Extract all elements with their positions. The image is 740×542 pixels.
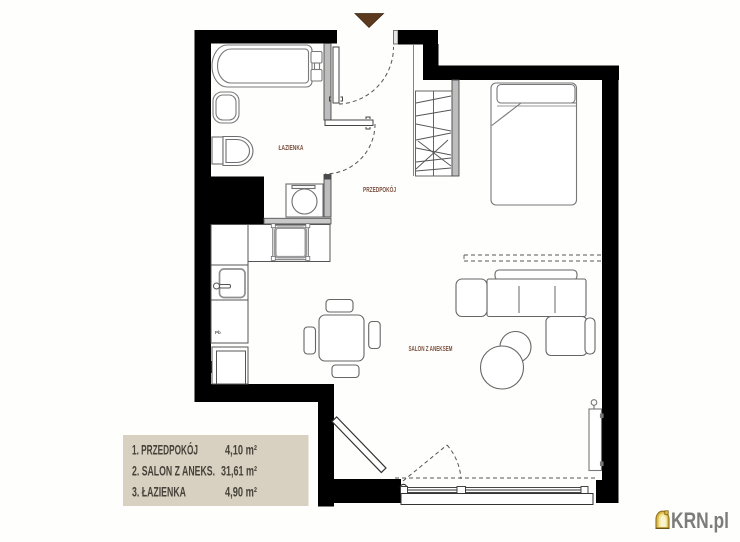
svg-text:Pb: Pb (215, 330, 221, 335)
svg-text:PRZEDPOKÓJ: PRZEDPOKÓJ (363, 185, 396, 194)
svg-text:4,90 m²: 4,90 m² (225, 484, 257, 500)
svg-text:2. SALON Z ANEKS.: 2. SALON Z ANEKS. (132, 463, 215, 479)
svg-text:1. PRZEDPOKÓJ: 1. PRZEDPOKÓJ (132, 441, 198, 458)
svg-text:ŁAZIENKA: ŁAZIENKA (279, 145, 304, 152)
svg-text:KRN.pl: KRN.pl (671, 508, 729, 533)
svg-text:3. ŁAZIENKA: 3. ŁAZIENKA (132, 484, 186, 500)
svg-text:31,61 m²: 31,61 m² (221, 463, 257, 479)
svg-text:SALON Z ANEKSEM: SALON Z ANEKSEM (409, 346, 453, 353)
svg-text:4,10 m²: 4,10 m² (225, 442, 257, 458)
